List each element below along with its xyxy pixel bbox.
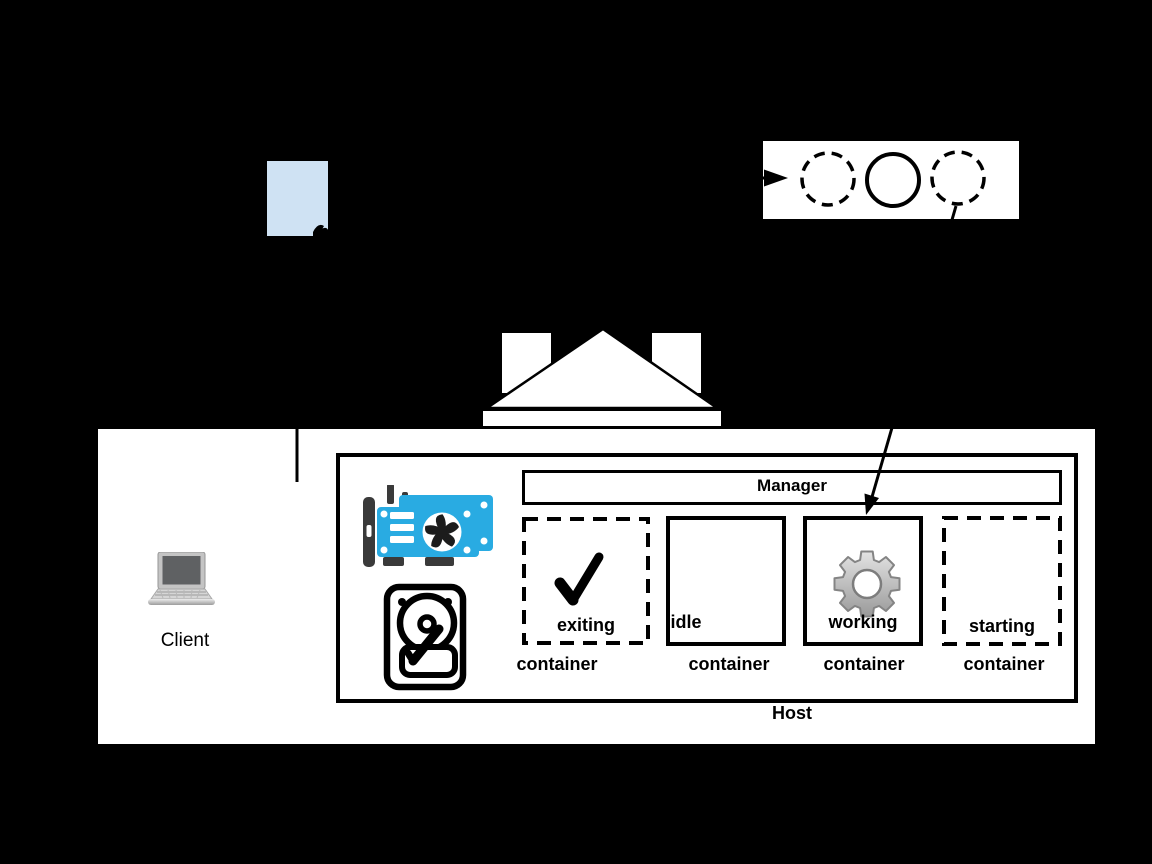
host-label: Host (742, 703, 842, 724)
client-label: Client (125, 630, 245, 652)
pediment-building-icon (480, 326, 724, 428)
state-label: working (807, 612, 919, 633)
gpu-card-icon (363, 485, 495, 567)
laptop-icon (147, 552, 217, 607)
container-caption: container (516, 654, 597, 675)
state-label: idle (626, 612, 746, 633)
state-label: starting (942, 616, 1062, 637)
dashed-circle-icon (802, 153, 854, 205)
manager-bar: Manager (522, 470, 1062, 505)
document-fold-icon (309, 219, 333, 237)
container-idle: idle (666, 516, 786, 646)
container-caption: container (688, 654, 769, 675)
diagram-stage: Client (0, 0, 1152, 864)
check-icon (560, 557, 599, 600)
solid-circle-icon (867, 154, 919, 206)
container-caption: container (823, 654, 904, 675)
container-working: working (803, 516, 923, 646)
hard-drive-icon (383, 583, 467, 691)
worker-pool-strip (763, 141, 1019, 219)
container-caption: container (963, 654, 1044, 675)
manager-label: Manager (525, 476, 1059, 496)
dashed-circle-icon (932, 152, 984, 204)
container-starting: starting (942, 516, 1062, 646)
gear-icon (831, 548, 903, 620)
arrowhead-icon (764, 170, 788, 187)
